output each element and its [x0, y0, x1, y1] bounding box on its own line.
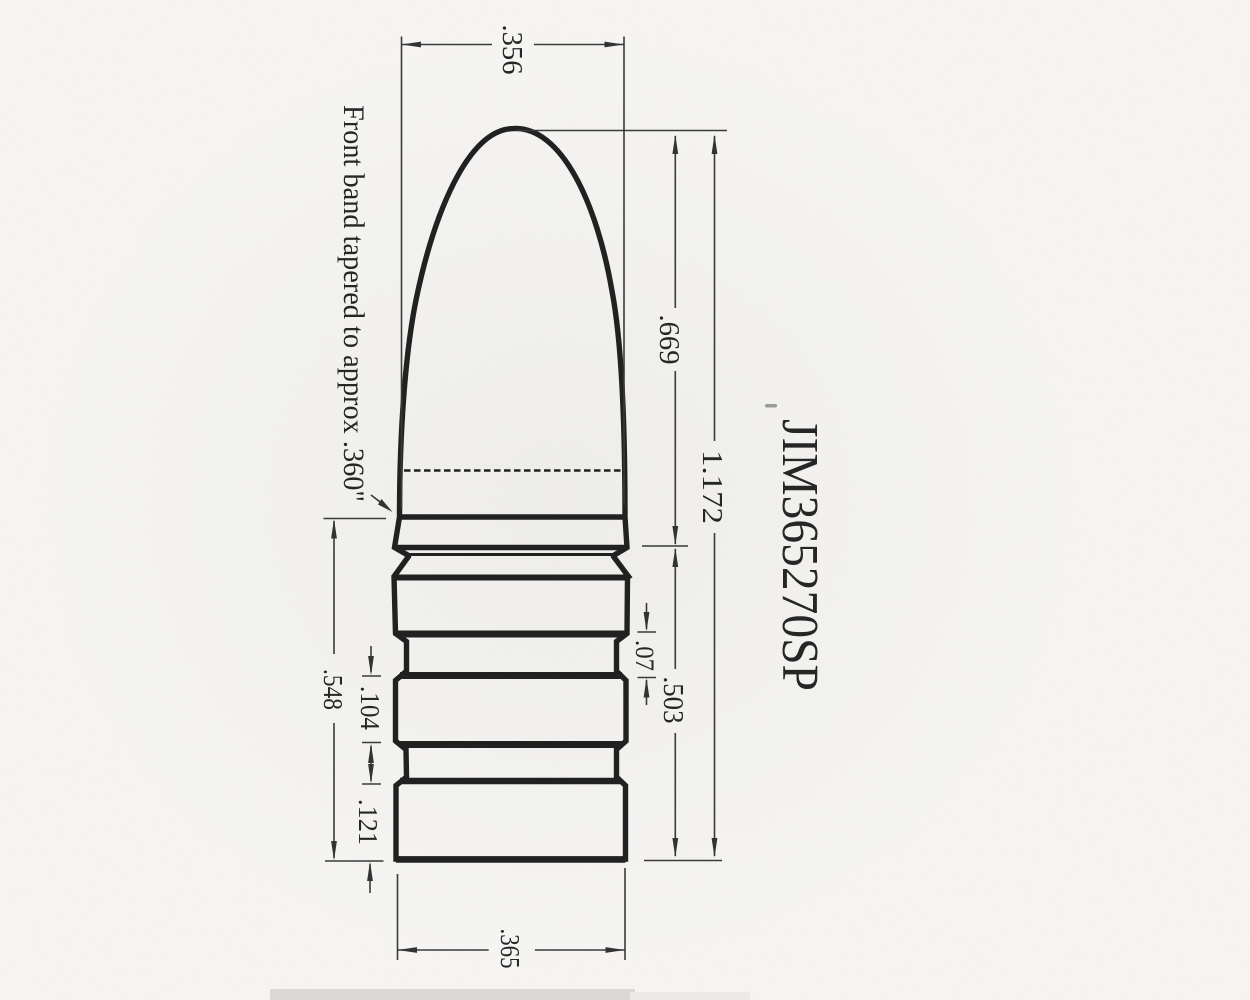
svg-text:.669: .669	[653, 315, 684, 365]
svg-text:JIM365270SP: JIM365270SP	[771, 419, 828, 691]
svg-text:.121: .121	[353, 799, 383, 845]
svg-text:.104: .104	[355, 686, 385, 730]
svg-text:.548: .548	[318, 669, 348, 710]
svg-text:1.172: 1.172	[696, 450, 728, 524]
svg-text:.07: .07	[630, 640, 659, 671]
svg-text:.356: .356	[496, 25, 528, 75]
svg-text:Front band tapered to approx .: Front band tapered to approx .360"	[337, 105, 370, 502]
svg-text:.365: .365	[495, 929, 525, 969]
svg-text:.503: .503	[657, 677, 688, 724]
